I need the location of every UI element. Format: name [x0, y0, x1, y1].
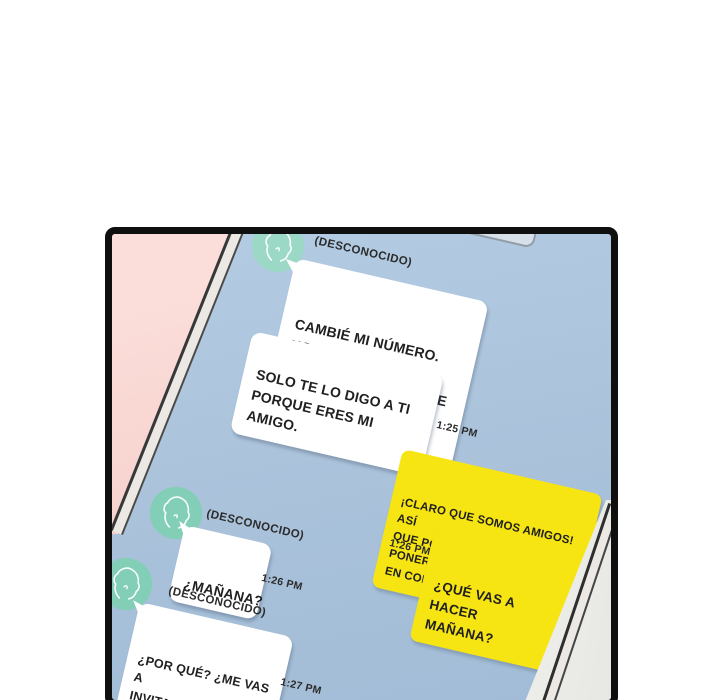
partial-bubble-top [378, 227, 542, 249]
timestamp: 1:27 PM [279, 676, 322, 697]
chat-bubble-incoming: ¿POR QUÉ? ¿ME VAS A INVITAR UNA COPA? [115, 602, 294, 700]
bubble-text: ¿POR QUÉ? ¿ME VAS A INVITAR UNA COPA? [128, 652, 271, 700]
bubble-text: SOLO TE LO DIGO A TI PORQUE ERES MI AMIG… [245, 366, 412, 434]
comic-page: (DESCONOCIDO) CAMBIÉ MI NÚMERO. NO LE DI… [0, 0, 720, 700]
sender-label: (DESCONOCIDO) [313, 235, 413, 269]
phone-chat-screen: (DESCONOCIDO) CAMBIÉ MI NÚMERO. NO LE DI… [112, 234, 611, 700]
timestamp: 1:26 PM [260, 572, 303, 593]
bubble-text: ¿QUÉ VAS A HACER MAÑANA? [424, 577, 517, 647]
comic-panel: (DESCONOCIDO) CAMBIÉ MI NÚMERO. NO LE DI… [105, 227, 618, 700]
